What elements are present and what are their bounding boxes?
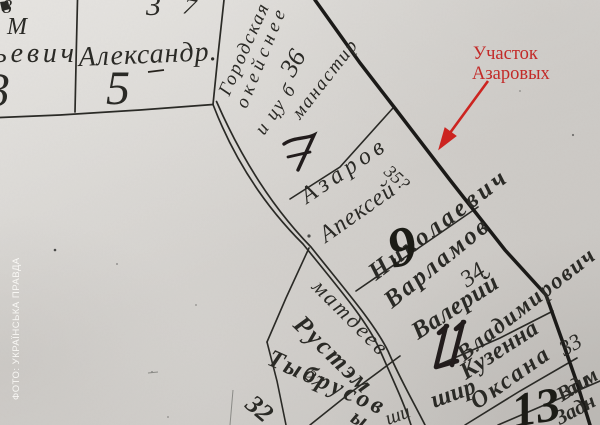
svg-text:Азаровых: Азаровых [472,64,551,84]
svg-text:ФОТО: УКРАЇНСЬКА ПРАВДА: ФОТО: УКРАЇНСЬКА ПРАВДА [11,257,22,400]
svg-text:5: 5 [106,62,130,115]
svg-text:13: 13 [508,377,564,425]
svg-text:3: 3 [145,0,161,22]
svg-text:Участок: Участок [473,44,538,64]
svg-text:3: 3 [0,64,10,117]
svg-text:ьевич: ьевич [0,38,74,69]
svg-text:Александр.: Александр. [76,36,217,73]
svg-text:М: М [6,14,29,40]
